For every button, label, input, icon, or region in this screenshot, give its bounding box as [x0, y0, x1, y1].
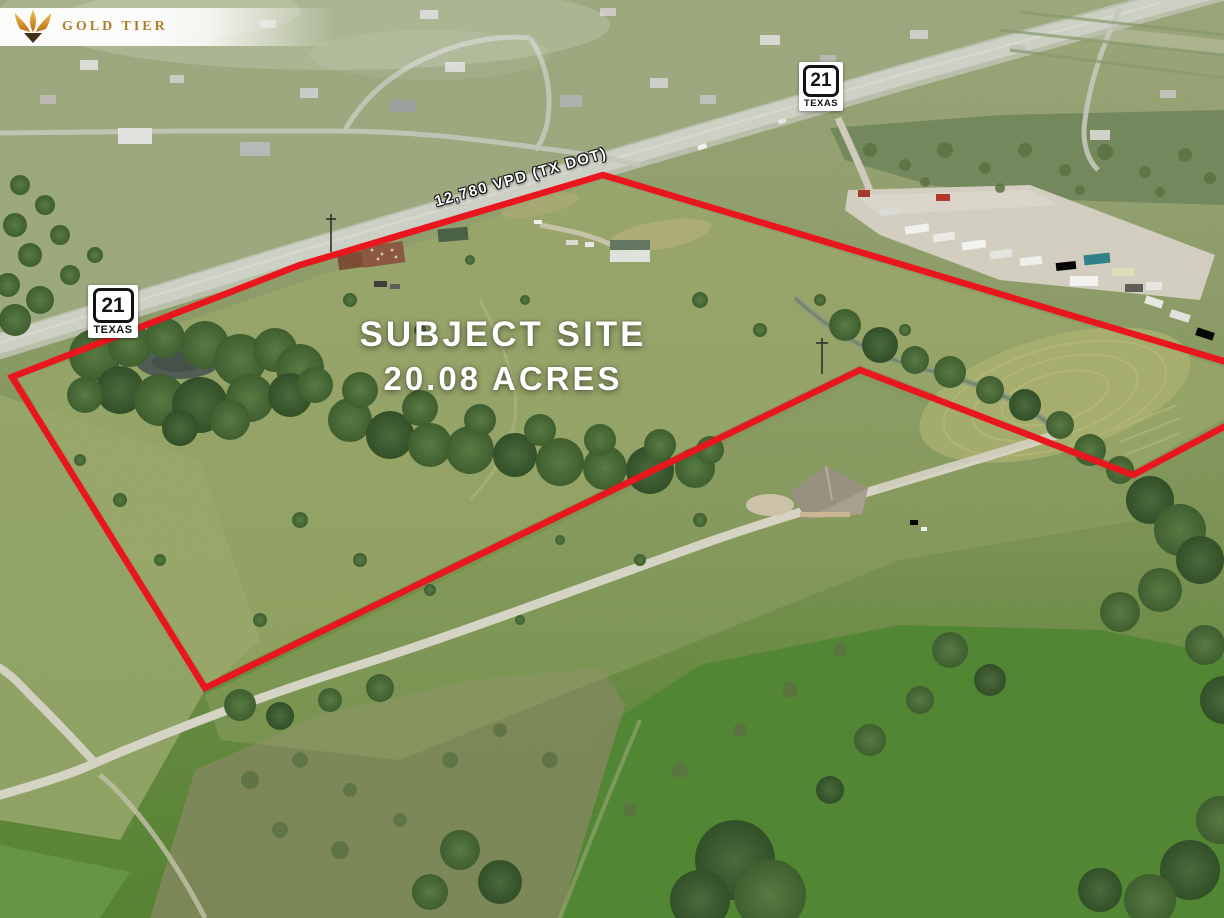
highway-state: TEXAS: [91, 324, 135, 336]
film-grain: [0, 0, 1224, 918]
texas-highway-21-shield-left: 21 TEXAS: [88, 285, 138, 338]
crown-icon: [13, 10, 53, 44]
highway-state: TEXAS: [802, 98, 840, 109]
site-label-acreage: 20.08 ACRES: [360, 360, 647, 398]
highway-number: 21: [93, 288, 134, 323]
logo-text: GOLD TIER: [62, 19, 168, 35]
listing-photo: 12,780 VPD (TX DOT) SUBJECT SITE 20.08 A…: [0, 0, 1224, 918]
texas-highway-21-shield-top: 21 TEXAS: [799, 62, 843, 111]
aerial-photo-background: [0, 0, 1224, 918]
site-label-title: SUBJECT SITE: [360, 315, 647, 354]
site-label: SUBJECT SITE 20.08 ACRES: [360, 315, 647, 398]
highway-number: 21: [803, 65, 839, 97]
gold-tier-logo: GOLD TIER: [0, 8, 335, 46]
